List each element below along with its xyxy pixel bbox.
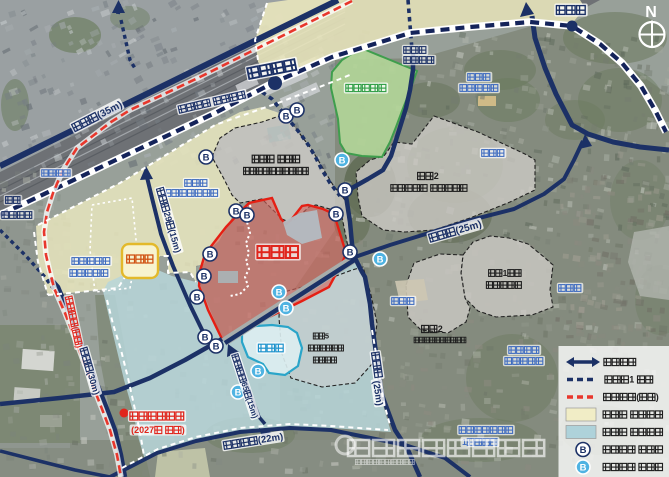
svg-text:B: B [207, 249, 214, 260]
svg-text:2: 2 [438, 324, 443, 334]
svg-text:): ) [656, 392, 659, 402]
svg-text:B: B [201, 271, 208, 282]
svg-text:B: B [339, 155, 346, 166]
svg-text:N: N [645, 4, 657, 21]
svg-text:B: B [580, 445, 587, 456]
svg-text:): ) [182, 425, 185, 435]
svg-text:1: 1 [629, 375, 634, 385]
svg-text:B: B [283, 303, 290, 314]
svg-text:B: B [294, 105, 301, 116]
svg-text:B: B [233, 206, 240, 217]
svg-text:(2027: (2027 [131, 425, 154, 435]
svg-text:B: B [377, 254, 384, 265]
svg-text:B: B [276, 287, 283, 298]
svg-text:B: B [235, 387, 242, 398]
svg-text:B: B [255, 366, 262, 377]
svg-text:B: B [342, 185, 349, 196]
svg-text:B: B [580, 462, 587, 473]
svg-text:B: B [213, 341, 220, 352]
svg-text:2: 2 [434, 171, 439, 181]
svg-text:B: B [244, 210, 251, 221]
svg-text:B: B [347, 247, 354, 258]
svg-text:1: 1 [503, 268, 508, 278]
svg-text:B: B [283, 111, 290, 122]
svg-text:(: ( [636, 392, 639, 402]
svg-text:B: B [202, 332, 209, 343]
svg-text:B: B [194, 292, 201, 303]
svg-text:B: B [333, 209, 340, 220]
svg-text:1: 1 [462, 437, 467, 447]
svg-text:5: 5 [325, 332, 329, 341]
svg-text:B: B [203, 152, 210, 163]
